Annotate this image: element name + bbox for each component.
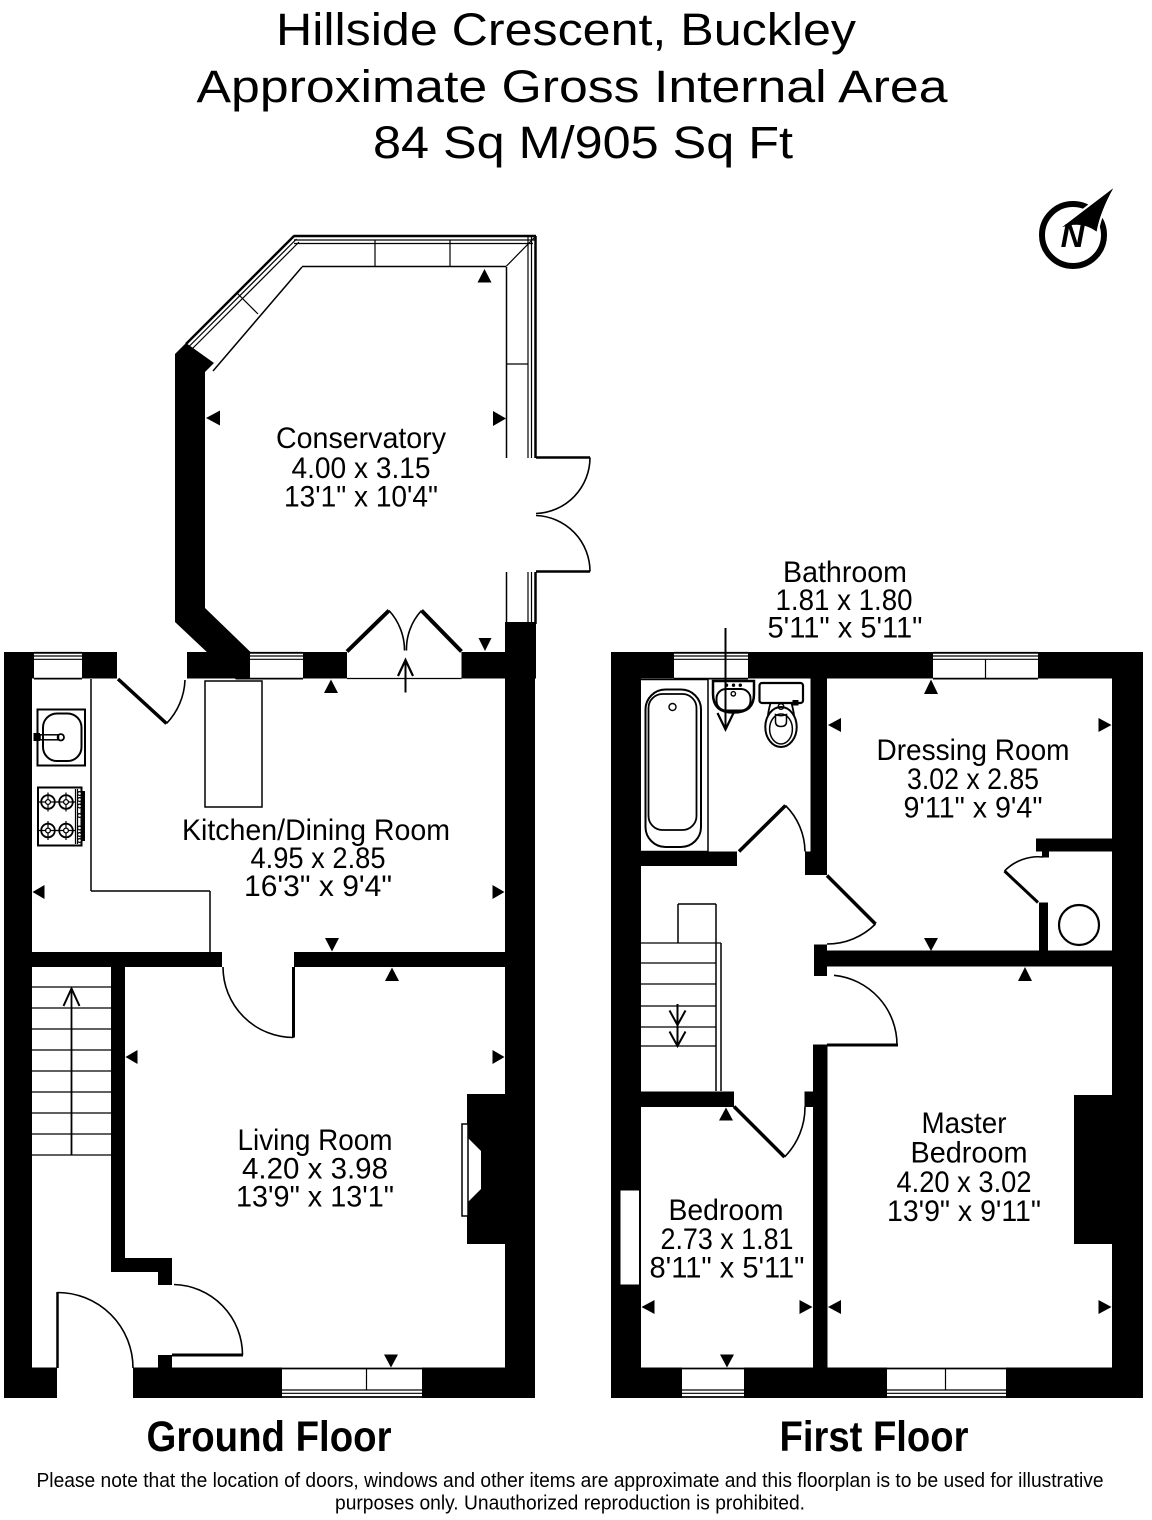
- svg-text:Please note that the location: Please note that the location of doors, …: [37, 1470, 1104, 1492]
- svg-text:16'3" x 9'4": 16'3" x 9'4": [244, 870, 392, 903]
- svg-text:First Floor: First Floor: [780, 1414, 969, 1461]
- svg-text:13'1" x 10'4": 13'1" x 10'4": [284, 481, 438, 514]
- svg-text:Hillside Crescent, Buckley: Hillside Crescent, Buckley: [276, 4, 857, 55]
- svg-text:Ground Floor: Ground Floor: [147, 1414, 392, 1461]
- svg-text:8'11" x 5'11": 8'11" x 5'11": [650, 1252, 805, 1285]
- svg-text:84 Sq M/905 Sq Ft: 84 Sq M/905 Sq Ft: [373, 117, 794, 168]
- svg-text:purposes only. Unauthorized re: purposes only. Unauthorized reproduction…: [335, 1493, 805, 1515]
- svg-text:5'11" x 5'11": 5'11" x 5'11": [768, 612, 923, 645]
- svg-text:Conservatory: Conservatory: [276, 422, 446, 455]
- svg-text:Approximate Gross Internal Are: Approximate Gross Internal Area: [197, 61, 949, 112]
- svg-text:9'11" x 9'4": 9'11" x 9'4": [904, 792, 1043, 825]
- svg-text:N: N: [1061, 217, 1086, 254]
- svg-text:13'9" x 13'1": 13'9" x 13'1": [236, 1181, 394, 1214]
- svg-text:Bedroom: Bedroom: [911, 1137, 1028, 1170]
- svg-text:Master: Master: [922, 1107, 1007, 1140]
- svg-text:13'9" x 9'11": 13'9" x 9'11": [887, 1195, 1041, 1228]
